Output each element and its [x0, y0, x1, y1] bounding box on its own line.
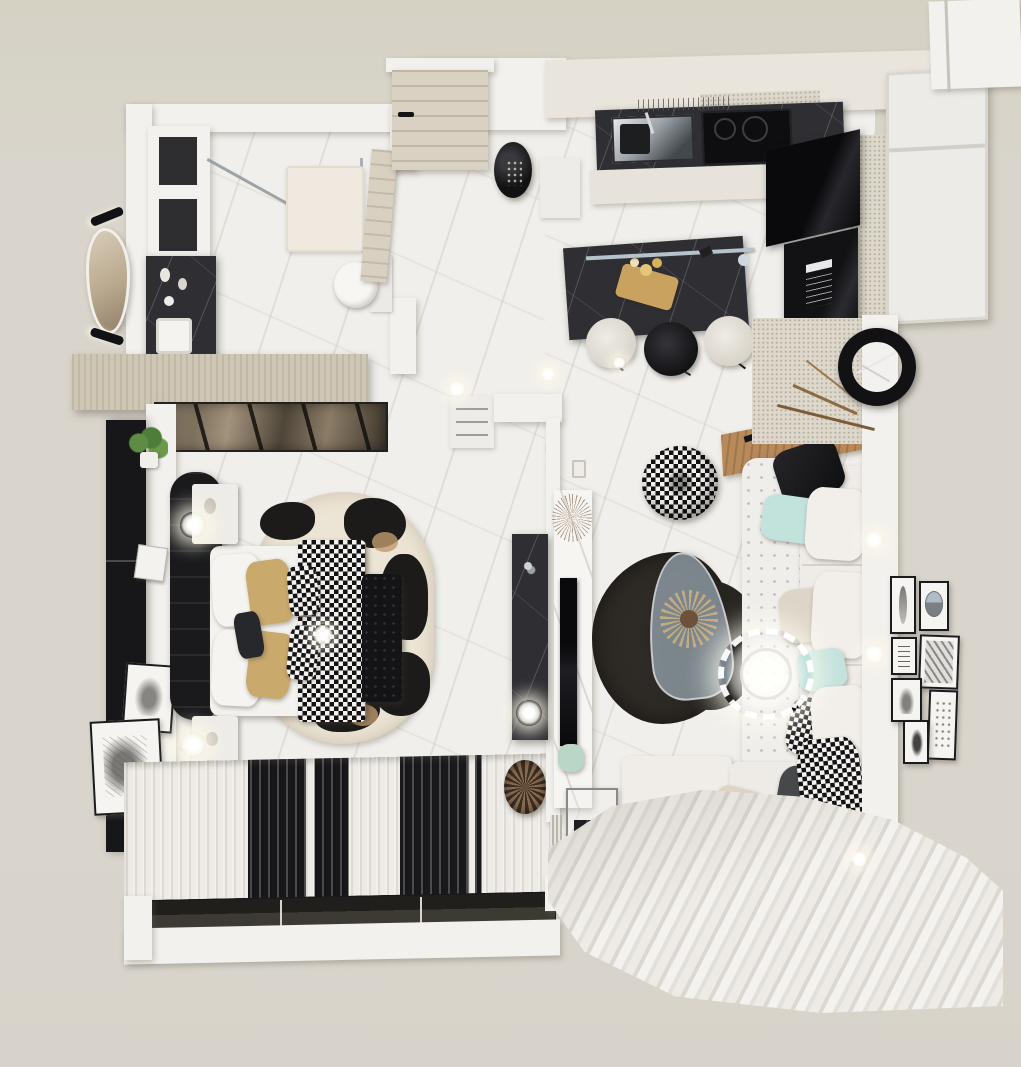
sill-corner-post [124, 896, 152, 960]
gallery-frame-script [927, 690, 958, 761]
chandelier-inner-ring [740, 648, 792, 700]
art-feather [899, 586, 907, 624]
vanity-sink [156, 318, 192, 354]
cowhide-spot [260, 502, 315, 540]
pampas-core [680, 610, 698, 628]
window-sill-south [124, 919, 560, 964]
art-botanical [898, 686, 915, 714]
green-glass-vase [558, 744, 584, 772]
island-fruit-2 [652, 258, 662, 268]
sphere-lamp-south [180, 732, 206, 758]
sheer-curtain-sweep [548, 778, 1003, 1013]
sphere-lamp-north [180, 512, 206, 538]
art-planet [925, 591, 943, 617]
vanity-mirror [86, 228, 130, 334]
bed-brooch-sparkle [312, 624, 334, 646]
drawer-handle-lines [456, 408, 488, 436]
console-decor [520, 556, 536, 576]
window-track-seams [280, 900, 282, 926]
console-lamp-glow [516, 700, 542, 726]
cooktop-ring-2 [742, 116, 768, 142]
cowhide-spot-tan [372, 532, 398, 552]
bed-pillow-houndstooth-1 [286, 565, 320, 617]
gallery-frame-hatch [918, 634, 960, 689]
light-switch [572, 460, 586, 478]
vanity-accessory-1 [160, 268, 170, 282]
shower-mat [286, 166, 364, 252]
gallery-frame-typography [891, 637, 917, 675]
ribbed-basket [504, 760, 546, 814]
pouf-pleat-shade [654, 458, 706, 508]
shelf-cubby-bottom [156, 196, 200, 254]
bed-bench [362, 574, 402, 702]
shelf-cubby-top [156, 134, 200, 188]
wall-led-glow-1 [864, 530, 884, 550]
ring-wall-clock [838, 328, 916, 406]
curtain-ripples [124, 754, 552, 913]
sofa-pillow-white-1 [804, 486, 869, 562]
curtain-depth-shade [548, 778, 1003, 1013]
nightstand-decor-1 [204, 498, 216, 514]
floor-glow-chaise [850, 850, 868, 868]
gallery-frame-botanical [891, 678, 922, 722]
media-wall-branches [552, 494, 592, 542]
oven-control-lines [806, 273, 832, 309]
bathroom-wall-right-lower [390, 298, 416, 374]
plant-pot [140, 452, 158, 468]
tall-cabinet-wall [886, 67, 988, 324]
wall-book-decor [134, 544, 168, 582]
bar-stool-white-2 [704, 316, 754, 366]
gallery-frame-feather [890, 576, 916, 634]
nightstand-decor-2 [206, 732, 218, 746]
ceiling-spot-kitchen-1 [540, 366, 556, 382]
mirrored-wardrobe-frames [156, 404, 386, 450]
gallery-frame-dark-feather [903, 720, 929, 764]
pendant-light-sphere [738, 254, 750, 266]
entry-vase-flowers [506, 160, 522, 186]
art-diagonal-hatch [924, 641, 953, 684]
window-track-seams [420, 897, 422, 923]
art-dark-feather [911, 729, 923, 757]
entry-door [392, 70, 488, 170]
bar-stool-black [644, 322, 698, 376]
art-script-dots [933, 700, 952, 749]
gallery-frame-planet [919, 581, 949, 631]
bar-stool-white-1 [586, 318, 636, 368]
entry-door-handle [398, 112, 414, 117]
ceiling-spot-hall [448, 380, 466, 398]
art-text-lines [898, 646, 910, 668]
wall-tv [560, 578, 577, 746]
exterior-wall-corner [928, 0, 1021, 90]
vanity-accessory-3 [164, 296, 174, 306]
bedroom-curtains [124, 754, 552, 913]
wall-led-glow-2 [864, 644, 884, 664]
island-fruit-3 [630, 258, 639, 267]
frame-sketch-art [133, 675, 166, 717]
cooktop-ring-1 [714, 118, 736, 140]
apartment-floor-plan [0, 0, 1021, 1067]
island-fruit-1 [640, 264, 652, 276]
ceiling-spot-kitchen-2 [612, 356, 626, 370]
vanity-accessory-2 [178, 278, 187, 290]
kitchen-sink-basin [620, 124, 650, 154]
sofa-seat-seam [802, 564, 864, 566]
kitchen-end-cabinet [540, 158, 580, 218]
wall-sconce-top [90, 206, 125, 227]
